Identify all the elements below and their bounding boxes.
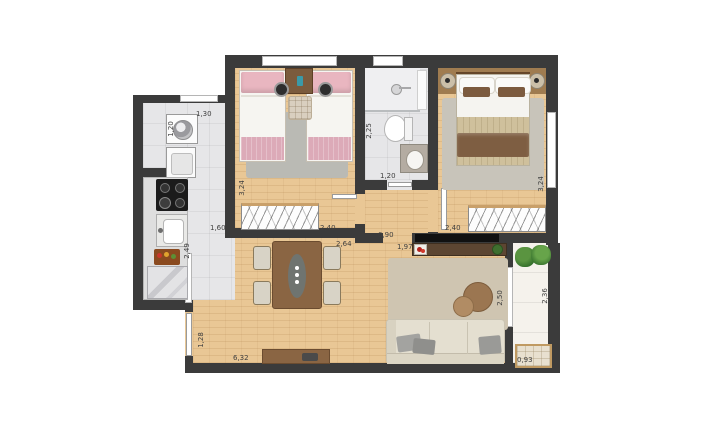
dim-hall-opening: 0,90 [378,231,394,239]
bed-blanket-pink [308,137,351,160]
dining-chair [323,246,341,270]
dim-entry-wall: 1,28 [197,332,205,348]
wall-kitchen-bottom [133,300,193,310]
washer-drum-icon [173,120,193,140]
dim-balcony-depth: 2,36 [541,288,549,304]
table-decor [295,273,299,277]
burner-icon [175,183,185,193]
sconce-center [534,78,539,83]
sideboard [262,349,330,364]
sofa-pillow-gray [478,335,501,355]
bedroom1-door [332,194,357,199]
burner-icon [160,183,170,193]
double-bed [456,74,530,166]
counter-decor [154,249,180,265]
dining-chair [253,246,271,270]
dim-bedroom2-width: 2,40 [445,224,461,232]
dim-bathroom-width: 1,20 [380,172,396,180]
fruit-icon [157,253,162,258]
dim-balcony-bench: 0,93 [517,356,533,364]
refrigerator [147,266,188,299]
sofa [386,319,505,364]
shower-head-icon [391,84,402,95]
toilet-tank [404,117,413,141]
pouf [288,96,312,120]
dim-kitchen-length: 1,60 [210,224,226,232]
bathroom-vanity [400,144,428,173]
table-decor [295,266,299,270]
sconce-lamp-icon [440,73,456,89]
wall-bottom [185,363,560,373]
sconce-lamp-icon [529,73,545,89]
faucet-icon [158,228,163,233]
wall-left-column [133,95,143,310]
dining-table [272,241,322,309]
sofa-back [387,353,504,364]
dim-bedroom2-depth: 3,24 [537,176,545,192]
service-window [180,95,218,102]
bedside-lamp-icon [274,82,289,97]
dining-chair [323,281,341,305]
bed-pillow-brown [498,87,525,97]
bedroom1-window [262,56,337,66]
sofa-pillow-gray [412,338,435,355]
shower-shelf [417,70,427,110]
bedroom2-door-opening [428,190,438,232]
sink-basin [163,219,184,244]
wall-bedroom1-left [225,63,235,238]
stove [156,179,188,211]
flower-red [421,249,425,253]
tv [415,234,499,242]
bed-pillow-brown [463,87,490,97]
bathroom-door [388,182,412,187]
bathroom-window [373,56,403,66]
wall-balcony-stub-bottom [505,327,513,363]
bedside-lamp-icon [318,82,333,97]
nightstand [285,68,313,94]
dim-bathroom-depth: 2,25 [365,123,373,139]
kitchen-sink [156,214,188,247]
vanity-basin [406,150,424,170]
dim-bedroom1-depth: 3,24 [238,180,246,196]
dining-chair [253,281,271,305]
sconce-center [445,78,450,83]
coffee-table-small [453,296,474,317]
burner-icon [175,198,185,208]
dim-tv-wall: 1,97 [397,243,413,251]
bed-blanket-brown [457,133,529,157]
burner-icon [159,197,171,209]
sofa-seam [467,322,468,354]
plant-icon [531,245,551,265]
bedroom2-wardrobe [468,205,546,232]
dim-dining-span: 2,64 [336,240,352,248]
bedroom1-wardrobe [241,203,319,230]
dim-balcony-opening: 2,50 [496,290,504,306]
floor-plan: 1,30 1,20 1,60 2,49 3,24 2,40 2,25 1,20 … [0,0,707,432]
plant-small-icon [492,244,503,255]
sideboard-object [302,353,318,361]
table-decor [295,280,299,284]
flower-vase-icon [414,244,427,255]
entry-door [186,313,192,356]
bed-blanket-pink [241,137,284,160]
fruit-icon [164,252,169,257]
dim-kitchen-depth: 2,49 [183,243,191,259]
shower-arm-icon [399,87,411,89]
dim-living-length: 6,32 [233,354,249,362]
laundry-sink [166,147,196,178]
laundry-basin [171,153,193,175]
dim-bedroom1-width: 2,40 [320,224,336,232]
bedroom2-window [547,112,556,188]
dim-service-width: 1,30 [196,110,212,118]
dim-service-depth: 1,20 [167,121,175,137]
fruit-icon [171,254,176,259]
phone-icon [297,76,303,86]
